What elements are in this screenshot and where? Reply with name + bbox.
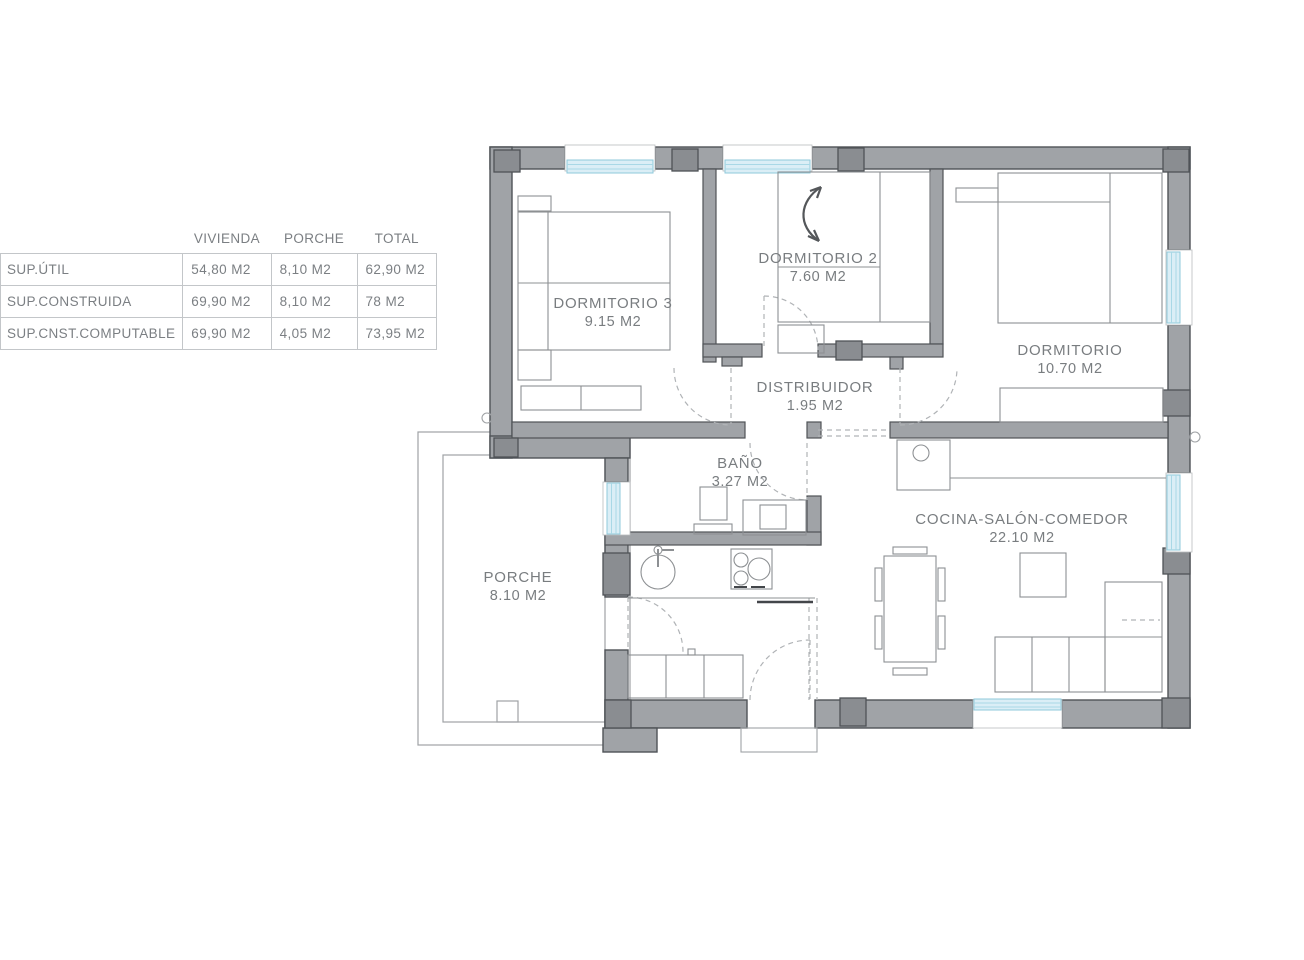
room-name: DORMITORIO 2 (738, 249, 898, 268)
door-dormitorio3 (674, 368, 731, 425)
floorplan-drawing (0, 0, 1304, 960)
bed-dormitorio3-icon (518, 196, 670, 380)
scanned-floorplan-page: VIVIENDA PORCHE TOTAL SUP.ÚTIL 54,80 M2 … (0, 0, 1304, 960)
room-name: DISTRIBUIDOR (735, 378, 895, 397)
room-name: DORMITORIO (990, 341, 1150, 360)
room-label-cocina-salon-comedor: COCINA-SALÓN-COMEDOR 22.10 M2 (912, 510, 1132, 548)
window-bottom-salon (973, 699, 1062, 728)
room-area: 3.27 M2 (660, 473, 820, 492)
dining-table-icon (875, 547, 945, 675)
kitchen-island-icon (897, 440, 1166, 490)
entrance-step-icon (741, 728, 817, 752)
room-name: PORCHE (438, 568, 598, 587)
room-name: BAÑO (660, 454, 820, 473)
sofa-icon (995, 582, 1162, 692)
coffee-table-icon (1020, 553, 1066, 597)
exterior-walls (490, 147, 1190, 752)
room-label-distribuidor: DISTRIBUIDOR 1.95 M2 (735, 378, 895, 416)
hall-cabinet-icon (628, 649, 743, 698)
door-dormitorio2 (764, 296, 818, 350)
room-name: COCINA-SALÓN-COMEDOR (912, 510, 1132, 529)
room-area: 1.95 M2 (735, 397, 895, 416)
room-label-dormitorio3: DORMITORIO 3 9.15 M2 (533, 294, 693, 332)
window-right-salon (1166, 473, 1192, 552)
room-area: 10.70 M2 (990, 360, 1150, 379)
wardrobe-dormitorio3-icon (521, 386, 641, 410)
door-dormitorio (900, 368, 957, 425)
porch-column (497, 701, 518, 722)
room-area: 9.15 M2 (533, 313, 693, 332)
open-boundary-lines (809, 430, 1160, 700)
window-top-dormitorio3 (565, 145, 655, 173)
door-entrance (750, 640, 810, 700)
kitchen-sink-icon (641, 546, 675, 589)
pipe-marker (1190, 432, 1200, 442)
wardrobe-dormitorio-icon (1000, 388, 1163, 422)
bed-dormitorio-icon (956, 173, 1162, 323)
room-area: 8.10 M2 (438, 587, 598, 606)
stove-icon (731, 549, 772, 589)
room-label-porche: PORCHE 8.10 M2 (438, 568, 598, 606)
kitchen-counter-icon (628, 598, 815, 602)
room-area: 7.60 M2 (738, 268, 898, 287)
window-right-dormitorio (1166, 250, 1192, 325)
room-name: DORMITORIO 3 (533, 294, 693, 313)
bathroom-fixtures-icon (694, 487, 806, 535)
room-area: 22.10 M2 (912, 529, 1132, 548)
room-label-dormitorio: DORMITORIO 10.70 M2 (990, 341, 1150, 379)
window-top-dormitorio2 (723, 145, 812, 173)
door-porche (628, 597, 683, 652)
room-label-bano: BAÑO 3.27 M2 (660, 454, 820, 492)
room-label-dormitorio2: DORMITORIO 2 7.60 M2 (738, 249, 898, 287)
window-bano (603, 482, 630, 535)
window-swing-arrow-icon (803, 187, 821, 241)
